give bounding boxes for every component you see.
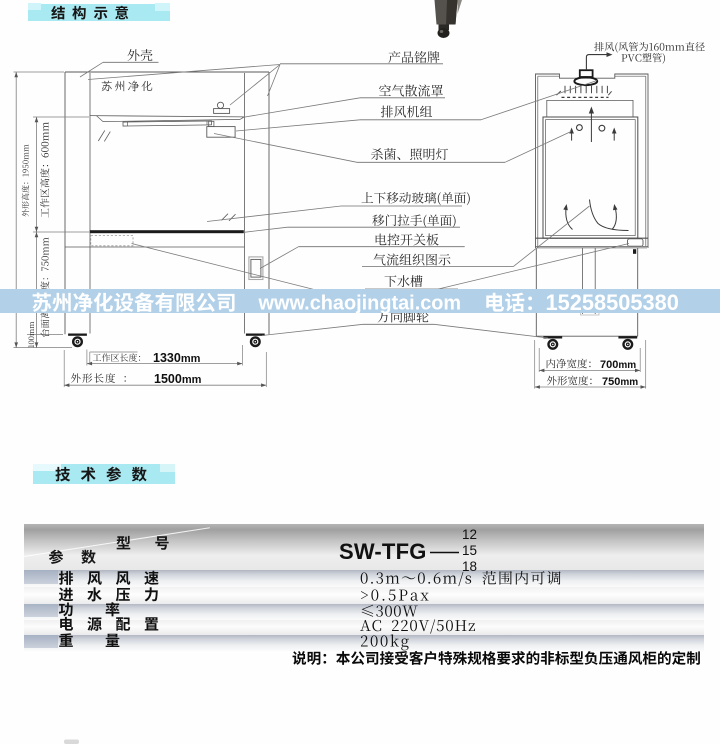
svg-text:15: 15: [462, 543, 477, 558]
svg-text:750mm: 750mm: [602, 376, 638, 388]
svg-text:www.chaojingtai.com: www.chaojingtai.com: [258, 293, 462, 315]
svg-text:1500mm: 1500mm: [154, 372, 202, 386]
svg-text:SW-TFG: SW-TFG: [339, 539, 427, 564]
svg-text:18: 18: [462, 559, 477, 574]
svg-text:15258505380: 15258505380: [546, 290, 679, 315]
svg-text:12: 12: [462, 527, 477, 542]
svg-text:700mm: 700mm: [600, 359, 636, 371]
svg-text:1330mm: 1330mm: [153, 351, 201, 365]
